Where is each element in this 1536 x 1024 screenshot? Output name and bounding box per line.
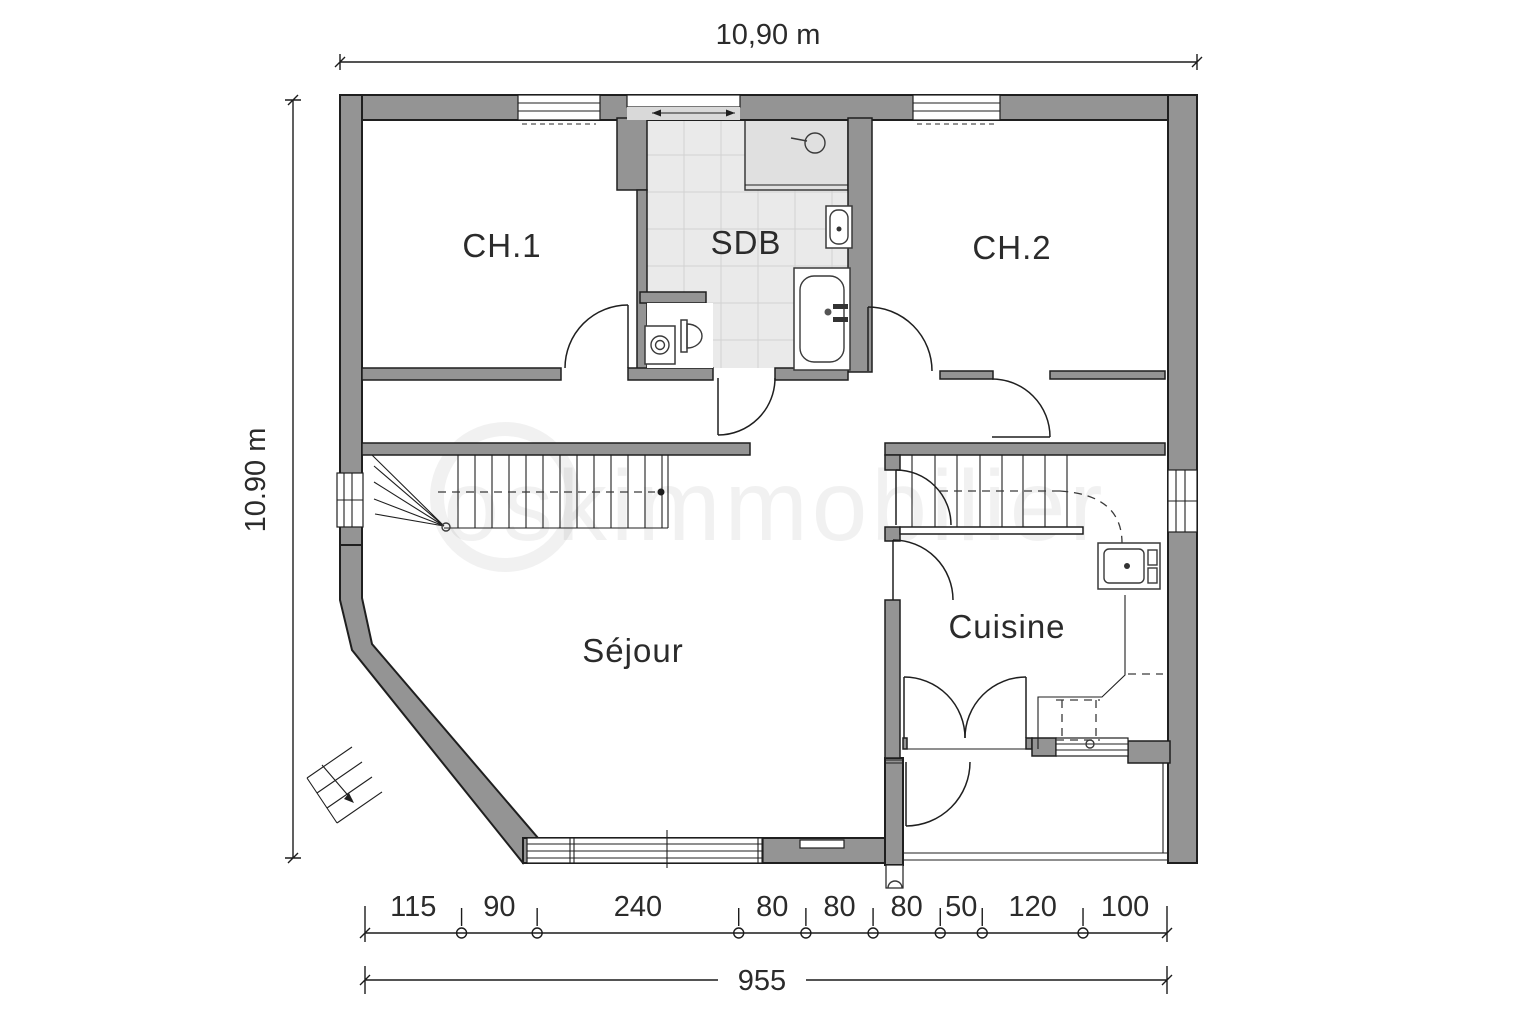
floor-plan-canvas: oskimmobilier [0, 0, 1536, 1024]
shower [745, 118, 848, 190]
north-wall [340, 95, 1197, 120]
dimension-segment-label: 80 [756, 891, 788, 923]
dimension-segment-label: 115 [390, 891, 436, 923]
kitchen-fixtures [1038, 543, 1163, 749]
dimension-segment-label: 100 [1101, 891, 1149, 923]
exterior-steps [307, 747, 382, 823]
door-sdb [718, 378, 775, 435]
room-label-cuisine: Cuisine [948, 608, 1065, 645]
dimension-segment-label: 90 [483, 891, 515, 923]
dimension-segment-label: 80 [823, 891, 855, 923]
room-label-ch2: CH.2 [972, 229, 1051, 266]
kitchen-sink-icon [1098, 543, 1160, 589]
door-ch1 [565, 305, 628, 368]
dimension-segment-label: 50 [945, 891, 977, 923]
dimension-total-label: 955 [738, 965, 786, 997]
window-west [337, 473, 363, 527]
door-ch2 [868, 307, 932, 371]
dimension-total-bottom: 955 [360, 965, 1172, 997]
window-ch1 [518, 95, 600, 124]
doors [565, 305, 1050, 826]
window-sdb [627, 95, 740, 120]
stair-enclosure-wall [362, 443, 750, 455]
entry-west-wall [885, 758, 903, 865]
dimension-segment-label: 80 [891, 891, 923, 923]
dimension-chain-bottom: 1159024080808050120100 [360, 891, 1172, 942]
dimension-segment-label: 120 [1008, 891, 1056, 923]
bay-window-south [527, 830, 763, 868]
dimension-top-label: 10,90 m [716, 19, 821, 51]
dimension-top: 10,90 m [335, 19, 1202, 70]
entry-door-arch [886, 865, 903, 888]
room-label-sdb: SDB [711, 224, 782, 261]
door-palier-stairs [992, 379, 1050, 437]
double-door-cuisine-terrace [904, 677, 1026, 738]
washing-machine-icon [645, 326, 675, 364]
floor-plan-page: oskimmobilier [0, 0, 1536, 1024]
terrace [903, 763, 1168, 860]
room-label-ch1: CH.1 [462, 227, 541, 264]
room-label-sejour: Séjour [582, 632, 683, 669]
dimension-left-label: 10.90 m [240, 428, 272, 533]
window-east [1168, 470, 1197, 532]
window-ch2 [913, 95, 1000, 124]
washbasin-icon [826, 206, 852, 248]
dimension-left: 10.90 m [240, 95, 301, 863]
bathtub-icon [794, 268, 850, 370]
dimension-segment-label: 240 [614, 891, 662, 923]
west-diagonal-wall [340, 545, 538, 863]
window-south-inset [800, 840, 844, 848]
